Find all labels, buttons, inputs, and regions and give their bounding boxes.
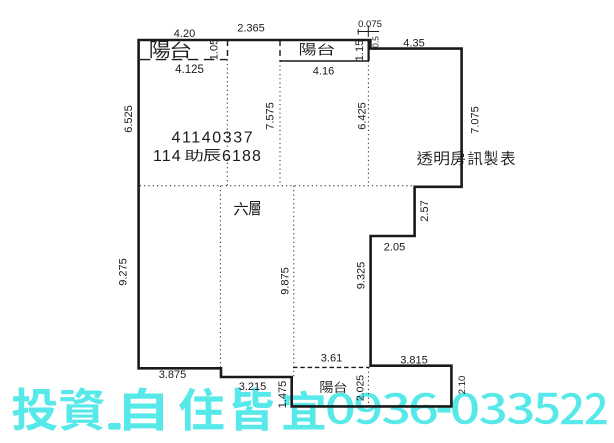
svg-text:4.20: 4.20: [174, 28, 195, 40]
svg-text:4.16: 4.16: [313, 66, 334, 78]
svg-text:9.875: 9.875: [280, 267, 292, 295]
svg-text:2.025: 2.025: [355, 375, 367, 401]
svg-text:0.5: 0.5: [371, 36, 381, 48]
svg-text:6.525: 6.525: [123, 105, 135, 133]
svg-text:4.125: 4.125: [175, 64, 204, 76]
svg-text:1.15: 1.15: [354, 40, 366, 61]
svg-text:2.05: 2.05: [384, 242, 405, 254]
svg-text:3.215: 3.215: [239, 381, 267, 393]
svg-text:41140337: 41140337: [172, 129, 255, 146]
svg-text:1.475: 1.475: [277, 381, 289, 409]
svg-text:2.57: 2.57: [419, 200, 431, 221]
svg-text:3.61: 3.61: [321, 353, 342, 365]
svg-text:7.575: 7.575: [265, 102, 277, 130]
svg-text:6188: 6188: [222, 148, 262, 165]
svg-text:7.075: 7.075: [470, 106, 482, 134]
svg-text:1.05: 1.05: [209, 39, 221, 60]
svg-text:6.425: 6.425: [357, 102, 369, 130]
svg-text:9.325: 9.325: [356, 262, 368, 290]
svg-text:3.875: 3.875: [159, 369, 187, 381]
svg-text:2.10: 2.10: [457, 376, 468, 395]
svg-text:0.075: 0.075: [358, 19, 382, 30]
svg-text:9.275: 9.275: [118, 258, 130, 286]
svg-text:2.365: 2.365: [237, 23, 265, 35]
svg-text:114: 114: [153, 148, 182, 165]
